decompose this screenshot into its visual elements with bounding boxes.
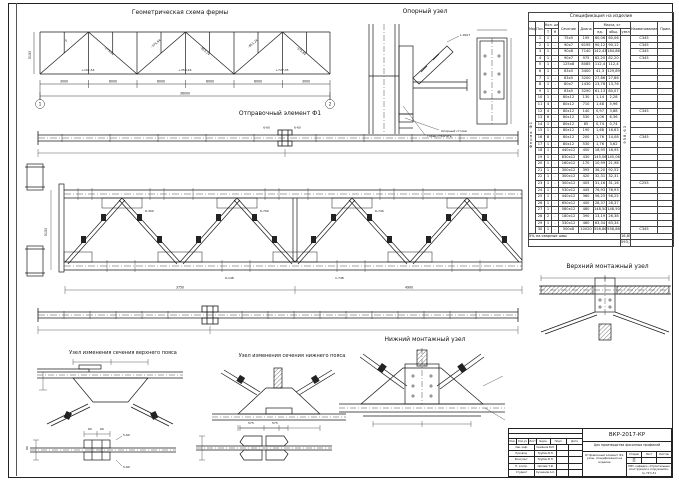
spec-unit-mass: 958,63 [621, 36, 631, 234]
document-code: ВКР-2017-КР [583, 429, 671, 442]
splice-detail-2-drawing: 575 575 [192, 420, 337, 476]
splice-detail-1-drawing: 60 60 5-60 5-60 90 [26, 426, 181, 476]
spec-grade-cell [631, 214, 658, 221]
spec-cell: 63х5 [559, 88, 579, 95]
spec-col-name: Наименование [631, 22, 658, 36]
dim-segment: 6000 [157, 80, 165, 84]
spec-group-label: Ферма Ф1 [529, 36, 536, 234]
sign-name: Трубин В.Н. [535, 451, 557, 456]
spec-cell: 75х5 [559, 36, 579, 43]
spec-col-marka: Марка [529, 22, 536, 36]
spec-row: 261-650х1240028,3728,37 [529, 200, 674, 207]
spec-cell: 29 [536, 220, 545, 227]
spec-grade-cell [631, 128, 658, 135]
sign-role: Студент [509, 470, 535, 476]
force-label: -375,84 [150, 38, 162, 49]
geometry-scheme-drawing: 3150 3000 6000 6000 6000 6000 3000 36000… [28, 18, 343, 110]
spec-cell [631, 240, 674, 247]
spec-cell: 14 [536, 121, 545, 128]
spec-cell: 24 [536, 187, 545, 194]
spec-cell: 76,93 [607, 187, 621, 194]
spec-table-title: Спецификация на изделие [529, 13, 674, 22]
spec-grade-cell [631, 194, 658, 201]
spec-row: 191-830х12430145,06145,06 [529, 154, 674, 161]
spec-cell: 80х12 [559, 141, 579, 148]
spec-cell [658, 128, 674, 135]
spec-cell: 1,06 [594, 115, 607, 122]
spec-cell: 30 [536, 227, 545, 234]
spec-row: 181-440х1245018,9518,95 [529, 148, 674, 155]
spec-row: 251-440х1236056,2556,25 [529, 194, 674, 201]
spec-grade-cell [631, 167, 658, 174]
spec-cell: 6 [545, 115, 552, 122]
spec-cell: - [552, 227, 559, 234]
spec-cell: 530 [579, 115, 594, 122]
spec-cell: 558,86 [607, 227, 621, 234]
spec-cell: 82,20 [607, 55, 621, 62]
dim-segment: 6000 [206, 80, 214, 84]
spec-cell: 3400 [579, 68, 594, 75]
spec-cell: 18 [536, 148, 545, 155]
spec-cell: 80х12 [559, 101, 579, 108]
dim-segment: 6000 [109, 80, 117, 84]
spec-cell: 1,48 [594, 101, 607, 108]
sign-role: Руковод. [509, 451, 535, 456]
spec-cell: 25 [536, 194, 545, 201]
spec-grade-cell [631, 75, 658, 82]
spec-cell: 90х7 [559, 55, 579, 62]
weld-callout: 6-300 [145, 209, 154, 213]
spec-cell: 1,76 [594, 134, 607, 141]
support-node-title: Опорный узел [370, 8, 480, 15]
spec-grade-cell: С345 [631, 108, 658, 115]
spec-cell: 1 [545, 95, 552, 102]
spec-row: 221-300х1242032,3132,31 [529, 174, 674, 181]
sign-name: Орлова Т.И. [535, 464, 557, 469]
spec-cell: 330х12 [559, 220, 579, 227]
spec-grade-cell [631, 121, 658, 128]
spec-col-qty: Кол. шт [545, 22, 559, 29]
dim-segment: 3000 [302, 80, 310, 84]
spec-cell: 1 [545, 220, 552, 227]
spec-row: 31-90х87140142,43184,86С345 [529, 49, 674, 56]
spec-cell: - [552, 161, 559, 168]
spec-cell: 405 [579, 181, 594, 188]
spec-grade-cell: С345 [631, 36, 658, 43]
spec-cell: 1430 [579, 82, 594, 89]
support-node-drawing: Опорный столик Торец строгать L-90х7 [355, 16, 513, 138]
spec-row: 211-300х1239536,2092,52 [529, 167, 674, 174]
spec-cell: 80,07 [607, 88, 621, 95]
spec-cell: 63х5 [559, 68, 579, 75]
sign-row: Студент Кузнецов А.С. [509, 470, 582, 476]
spec-row: 171-80х125301,763,62 [529, 141, 674, 148]
project-name: Цех производства фасонных профилей [583, 442, 671, 452]
spec-cell: 1 [545, 227, 552, 234]
spec-cell: 28 [536, 214, 545, 221]
spec-cell: 200 [579, 134, 594, 141]
spec-table: Спецификация на изделие Марка Поз. Кол. … [528, 12, 674, 247]
spec-cell: 530х12 [559, 187, 579, 194]
spec-grade-cell [631, 161, 658, 168]
force-label: +747,05 [275, 68, 288, 72]
spec-row: 101-80х121301,142,28 [529, 95, 674, 102]
spec-cell: 2,28 [607, 95, 621, 102]
spec-cell: 530 [579, 141, 594, 148]
spec-cell: 56,25 [594, 194, 607, 201]
spec-cell: 3 [536, 49, 545, 56]
spec-cell: 360 [579, 194, 594, 201]
spec-cell [658, 134, 674, 141]
spec-cell: - [552, 154, 559, 161]
spec-cell: 1 [545, 174, 552, 181]
spec-cell: - [552, 82, 559, 89]
spec-cell: 10,99 [594, 161, 607, 168]
spec-cell: 27,86 [594, 75, 607, 82]
spec-cell: 80х12 [559, 115, 579, 122]
spec-cell [658, 214, 674, 221]
spec-cell: 500х8 [559, 227, 579, 234]
spec-table-container: Спецификация на изделие Марка Поз. Кол. … [528, 12, 673, 238]
spec-grade-cell: С345 [631, 55, 658, 62]
spec-cell [658, 82, 674, 89]
spec-footer-value: 16,85 [621, 233, 631, 240]
spec-cell: 21,98 [607, 161, 621, 168]
spec-grade-cell [631, 174, 658, 181]
truss-elevation-drawing: 3150 3750 4900 6-300 6-700 6-740 6-148 1… [25, 158, 525, 306]
spec-row: 81-80х7143013,7613,76 [529, 82, 674, 89]
spec-cell: - [552, 42, 559, 49]
spec-cell: 12 [536, 108, 545, 115]
dim-label: 575 [272, 421, 278, 425]
spec-cell: 1 [545, 181, 552, 188]
spec-cell: 1 [545, 194, 552, 201]
spec-row: 91-63х5329061,1380,07 [529, 88, 674, 95]
spec-cell [658, 55, 674, 62]
sign-name: Семёнов В.М. [535, 445, 557, 450]
spec-cell [658, 161, 674, 168]
spec-cell [658, 154, 674, 161]
spec-cell: 1,14 [594, 95, 607, 102]
spec-cell: 1 [545, 141, 552, 148]
spec-cell: 400 [579, 200, 594, 207]
spec-cell: 9 [536, 88, 545, 95]
spec-cell: 650х12 [559, 200, 579, 207]
sheet-margin-line [16, 3, 17, 476]
sign-role: Н. контр. [509, 464, 535, 469]
force-label: -375,84 [295, 46, 307, 57]
spec-cell: 160х12 [559, 161, 579, 168]
dim-height: 3150 [28, 51, 32, 60]
spec-cell: 90,12 [607, 42, 621, 49]
spec-cell: 80х12 [559, 128, 579, 135]
force-label: +353,44 [178, 68, 191, 72]
spec-cell: 390 [579, 214, 594, 221]
spec-cell: 2 [536, 42, 545, 49]
dim-height: 3150 [44, 228, 48, 237]
spec-grade-cell: С345 [631, 49, 658, 56]
spec-cell: 13,19 [594, 214, 607, 221]
spec-col-note: Прим. [658, 22, 674, 36]
spec-cell: 10 [536, 95, 545, 102]
spec-cell [658, 42, 674, 49]
spec-cell: 830х12 [559, 154, 579, 161]
spec-cell: 21 [536, 167, 545, 174]
shipping-element-title: Отправочный элемент Ф1 [195, 110, 365, 117]
spec-cell: 32,31 [594, 174, 607, 181]
spec-row: 41-90х797582,2082,20С345 [529, 55, 674, 62]
spec-cell: 445 [579, 187, 594, 194]
stage-value: П [627, 458, 642, 463]
spec-cell: 0,74 [594, 121, 607, 128]
spec-cell: 22 [536, 174, 545, 181]
callout-member: L-90х7 [460, 33, 470, 37]
spec-cell: 63,34 [594, 220, 607, 227]
dim-label: 90 [25, 446, 29, 450]
force-label: -275,04 [103, 46, 115, 57]
spec-cell: 420 [579, 174, 594, 181]
spec-cell: - [552, 75, 559, 82]
spec-cell: - [552, 181, 559, 188]
spec-cell: 112,4 [594, 62, 607, 69]
spec-cell: 1 [545, 148, 552, 155]
spec-col-qty-n: Н [552, 29, 559, 36]
spec-cell [658, 115, 674, 122]
spec-cell: 195 [579, 36, 594, 43]
spec-cell: 975 [579, 55, 594, 62]
spec-cell: 580х12 [559, 207, 579, 214]
force-label: 0 [64, 38, 68, 42]
spec-cell: - [552, 187, 559, 194]
spec-cell: 0,97 [594, 108, 607, 115]
spec-cell [658, 181, 674, 188]
spec-cell: 148,50 [607, 207, 621, 214]
spec-cell: 17 [536, 141, 545, 148]
spec-col-mass-unit: узел [621, 29, 631, 36]
spec-cell: 112,4 [607, 62, 621, 69]
spec-cell: 80х12 [559, 108, 579, 115]
spec-cell [658, 227, 674, 234]
spec-cell: 1 [545, 49, 552, 56]
spec-cell: 8085 [579, 62, 594, 69]
spec-cell: 3290 [579, 88, 594, 95]
spec-cell: 2 [545, 214, 552, 221]
spec-row: 114-80х127101,485,96 [529, 101, 674, 108]
spec-cell: 60,06 [594, 36, 607, 43]
spec-cell: 76,93 [594, 187, 607, 194]
top-chord-change-title: Узел изменения сечения верхнего пояса [48, 350, 198, 356]
spec-cell: 129,89 [607, 68, 621, 75]
spec-cell: 1 [545, 121, 552, 128]
sign-role: Зав. каф. [509, 445, 535, 450]
spec-row: 231-300х1240531,1631,16С255 [529, 181, 674, 188]
sign-name: Трубин В.Н. [535, 457, 557, 462]
spec-cell [658, 36, 674, 43]
spec-footer-row: 593,14 [529, 240, 674, 247]
spec-cell: - [552, 167, 559, 174]
upper-node-title: Верхний монтажный узел [545, 263, 670, 270]
sign-header: Дата [567, 439, 582, 444]
weld-callout: 6-148 [225, 276, 234, 280]
spec-row: Ферма Ф111-75х519560,0660,06958,63С345 [529, 36, 674, 43]
spec-cell: 125х8 [559, 62, 579, 69]
force-label: +101,54 [81, 68, 94, 72]
sign-name: Кузнецов А.С. [535, 470, 557, 476]
spec-row: 201-160х1217010,9921,98 [529, 161, 674, 168]
axis-mark: 1 [39, 102, 42, 107]
spec-cell: 18,95 [607, 148, 621, 155]
spec-row: 168-80х122001,7614,08С345 [529, 134, 674, 141]
spec-cell: 85 [579, 121, 594, 128]
spec-cell: 90х8 [559, 49, 579, 56]
spec-cell [658, 220, 674, 227]
spec-cell: 26,38 [607, 214, 621, 221]
spec-cell: - [552, 200, 559, 207]
spec-cell: - [552, 214, 559, 221]
spec-cell [658, 121, 674, 128]
spec-grade-cell [631, 68, 658, 75]
spec-cell: 1 [545, 36, 552, 43]
spec-cell: 1 [545, 154, 552, 161]
spec-row: 136-80х125301,066,36 [529, 115, 674, 122]
weld-callout: 6-700 [260, 209, 269, 213]
spec-cell [658, 101, 674, 108]
spec-col-mass-ed: ед. [594, 29, 607, 36]
spec-cell: 395 [579, 167, 594, 174]
spec-cell [658, 68, 674, 75]
spec-cell: 430 [579, 154, 594, 161]
spec-cell: 16 [536, 134, 545, 141]
spec-cell: - [552, 101, 559, 108]
spec-cell: 3200 [579, 75, 594, 82]
stage-label: Стадия [627, 452, 642, 457]
spec-cell: 23 [536, 181, 545, 188]
spec-cell: - [552, 95, 559, 102]
spec-cell: 1 [545, 88, 552, 95]
spec-cell [658, 75, 674, 82]
sheets-label: Листов [657, 452, 671, 457]
spec-grade-cell [631, 62, 658, 69]
spec-cell: 1,68 [594, 128, 607, 135]
spec-cell: - [552, 128, 559, 135]
spec-col-qty-t: Т [545, 29, 552, 36]
spec-cell: 1 [545, 82, 552, 89]
organization: НИУ, кафедра «Строительные конструкции и… [627, 464, 671, 476]
spec-cell [658, 49, 674, 56]
spec-cell: 1 [545, 55, 552, 62]
spec-cell: 36,20 [594, 167, 607, 174]
spec-cell: 32,31 [607, 174, 621, 181]
spec-col-section: Сечение [559, 22, 579, 36]
title-block-main: ВКР-2017-КР Цех производства фасонных пр… [583, 429, 671, 476]
lower-node-drawing [333, 346, 511, 434]
sheet-content-label: Отправочный элемент Ф1, узлы, спецификац… [583, 452, 627, 476]
spec-cell: 1 [545, 207, 552, 214]
spec-cell: - [552, 134, 559, 141]
sign-header: Кол.уч [517, 439, 529, 444]
spec-cell: 6 [536, 68, 545, 75]
spec-footer-value: 593,14 [621, 240, 631, 247]
spec-cell [658, 187, 674, 194]
dim-span: 3750 [176, 286, 184, 290]
axis-mark: 2 [329, 102, 332, 107]
spec-cell: 16,63 [607, 128, 621, 135]
spec-row: 124-80х121400,973,88С345 [529, 108, 674, 115]
spec-cell [658, 88, 674, 95]
spec-cell: 28,37 [594, 200, 607, 207]
title-block: Изм. Кол.уч Лист №док. Подп. Дата Зав. к… [508, 428, 672, 477]
spec-grade-cell [631, 115, 658, 122]
spec-row: 301-500х810020558,86558,86С345 [529, 227, 674, 234]
spec-cell: 31,16 [594, 181, 607, 188]
spec-cell: 11 [536, 101, 545, 108]
force-label: -853,24 [247, 38, 259, 49]
spec-row: 282-180х1239013,1926,38 [529, 214, 674, 221]
dim-segment: 6000 [254, 80, 262, 84]
weld-callout: 6-60 [263, 126, 270, 130]
spec-cell: 142,43 [594, 49, 607, 56]
bottom-chord-drawing [30, 300, 525, 338]
spec-cell: 130 [579, 95, 594, 102]
spec-cell: 4 [536, 55, 545, 62]
spec-cell [658, 141, 674, 148]
spec-cell: 1,76 [594, 141, 607, 148]
spec-footer-label [529, 240, 621, 247]
spec-cell: - [552, 194, 559, 201]
spec-row: 271-580х12480148,50148,50 [529, 207, 674, 214]
weld-callout: 6-740 [375, 209, 384, 213]
spec-cell: 1 [545, 75, 552, 82]
spec-cell: 80х7 [559, 82, 579, 89]
spec-cell: 8 [545, 134, 552, 141]
weld-callout: 1-748 [335, 276, 344, 280]
spec-cell: 300х12 [559, 174, 579, 181]
spec-row: 291-330х1246063,3463,34 [529, 220, 674, 227]
spec-cell: 13,76 [594, 82, 607, 89]
spec-cell: 1 [545, 187, 552, 194]
spec-col-length: Длина [579, 22, 594, 36]
spec-cell [658, 167, 674, 174]
spec-cell: 20 [536, 161, 545, 168]
weld-callout: 6-60 [294, 126, 301, 130]
dim-span: 4900 [405, 286, 413, 290]
spec-row: 141-80х12850,740,74 [529, 121, 674, 128]
top-change-node-drawing [33, 358, 188, 428]
spec-cell: 4 [545, 108, 552, 115]
spec-cell: - [552, 148, 559, 155]
spec-cell: 13 [536, 115, 545, 122]
spec-cell: 28,37 [607, 200, 621, 207]
spec-cell: 80х12 [559, 121, 579, 128]
spec-cell: 170 [579, 161, 594, 168]
spec-row: 61-63х5340041,3129,89 [529, 68, 674, 75]
spec-cell: 90,12 [594, 42, 607, 49]
title-block-signatures: Изм. Кол.уч Лист №док. Подп. Дата Зав. к… [509, 429, 583, 476]
spec-cell: 27 [536, 207, 545, 214]
spec-cell: - [552, 115, 559, 122]
shipping-element-drawing: 6-60 6-60 [30, 125, 525, 160]
spec-row: 21-90х7619590,1290,12С345 [529, 42, 674, 49]
sign-header: Подп. [551, 439, 567, 444]
drawing-sheet: Геометрическая схема фермы Опорный узел … [0, 0, 679, 480]
spec-cell: 140 [579, 108, 594, 115]
spec-grade-cell [631, 95, 658, 102]
spec-cell: 0,74 [607, 121, 621, 128]
spec-cell: 300х12 [559, 181, 579, 188]
spec-cell: - [552, 36, 559, 43]
spec-cell: 15 [536, 128, 545, 135]
spec-cell: 710 [579, 101, 594, 108]
